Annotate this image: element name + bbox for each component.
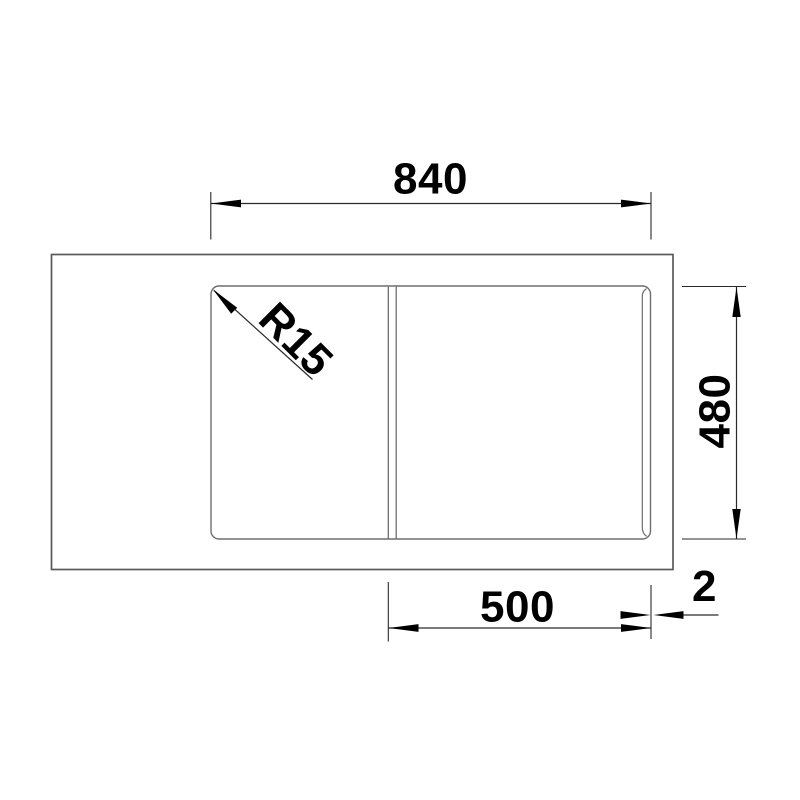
sink-outline-group — [52, 255, 674, 570]
dimension-label-overall-width: 840 — [393, 155, 468, 204]
arrowhead-pointing-right — [621, 611, 651, 619]
dimension-overall-depth: 480 — [682, 287, 746, 540]
technical-drawing-canvas: 840 480 500 2 — [0, 0, 800, 800]
arrowhead-right — [621, 624, 651, 632]
arrowhead-left — [389, 624, 419, 632]
arrowhead-right — [621, 200, 651, 208]
radius-label: R15 — [249, 293, 342, 386]
radius-arrowhead — [213, 289, 237, 313]
radius-callout: R15 — [213, 289, 342, 386]
arrowhead-pointing-left — [654, 611, 684, 619]
dimension-edge-offset: 2 — [621, 562, 719, 619]
sink-dimension-drawing: 840 480 500 2 — [0, 0, 800, 800]
arrowhead-left — [211, 200, 241, 208]
arrowhead-down — [732, 509, 740, 539]
dimension-label-edge-offset: 2 — [692, 562, 717, 611]
dimension-label-overall-depth: 480 — [691, 374, 740, 449]
dimension-label-bowl-width: 500 — [480, 583, 555, 632]
dimension-overall-width: 840 — [211, 155, 651, 240]
bowl-rim-inner-edge — [642, 289, 646, 537]
sink-outer-outline — [52, 255, 674, 570]
arrowhead-up — [732, 287, 740, 317]
dimension-bowl-width: 500 — [388, 582, 651, 642]
